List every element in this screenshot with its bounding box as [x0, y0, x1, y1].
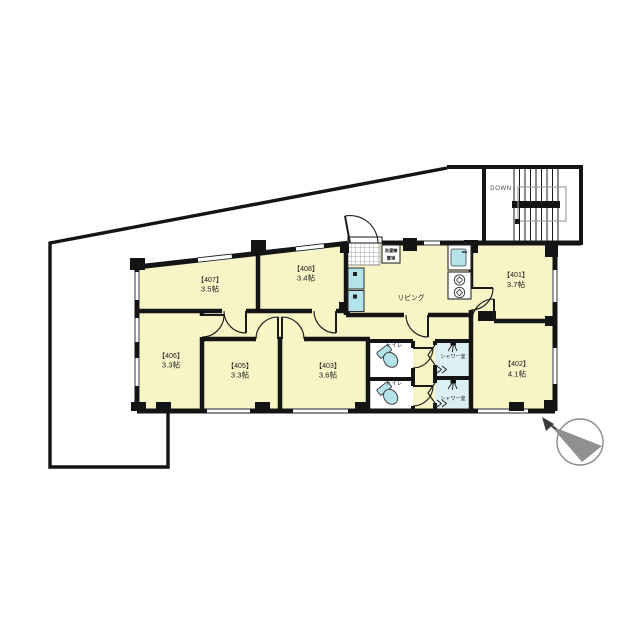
kitchen-sink: [448, 245, 471, 270]
room-405-id: 【405】: [227, 362, 253, 370]
living-label: リビング: [397, 293, 424, 302]
compass: [542, 417, 603, 465]
laundry-box: 洗濯機 置場: [382, 245, 400, 263]
room-403-size: 3.6帖: [319, 370, 338, 380]
entrance-door: [345, 216, 382, 243]
window-405-bottom: [207, 408, 250, 414]
shower1-label: シャワー室: [440, 353, 465, 360]
window-407-left: [134, 272, 140, 300]
room-406-size: 3.3帖: [162, 360, 181, 370]
kitchen-stove: [448, 272, 471, 299]
room-408-size: 3.4帖: [297, 273, 316, 283]
washbasin-1: [348, 268, 364, 289]
window-406-left-1: [134, 318, 140, 342]
room-403-id: 【403】: [315, 362, 341, 370]
room-408-id: 【408】: [293, 265, 319, 273]
room-401-size: 3.7帖: [507, 279, 526, 289]
room-407-size: 3.5帖: [201, 284, 220, 294]
room-402-size: 4.1帖: [508, 369, 527, 379]
stairs-down-label: DOWN: [490, 186, 511, 192]
room-407-id: 【407】: [197, 276, 223, 284]
room-405-size: 3.3帖: [231, 370, 250, 380]
window-406-left-2: [134, 358, 140, 386]
toilet1-label: トイレ: [386, 343, 403, 349]
toilet2-label: トイレ: [386, 381, 403, 387]
room-401-id: 【401】: [503, 271, 529, 279]
window-401-right: [552, 270, 558, 302]
washbasin-2: [348, 291, 364, 312]
laundry-label-2: 置場: [387, 255, 396, 262]
floor-plan: 洗濯機 置場: [0, 0, 640, 640]
room-406-id: 【406】: [158, 352, 184, 360]
room-402-id: 【402】: [504, 360, 530, 368]
laundry-label-1: 洗濯機: [385, 247, 398, 254]
stair-arrow-dot: [515, 219, 520, 224]
window-403-bottom: [293, 408, 348, 414]
window-kitchen-top: [424, 240, 440, 246]
genkan-floor: [346, 243, 380, 265]
shower2-label: シャワー室: [440, 395, 465, 402]
window-402-right: [552, 348, 558, 384]
stair-landing-wall: [512, 201, 560, 208]
